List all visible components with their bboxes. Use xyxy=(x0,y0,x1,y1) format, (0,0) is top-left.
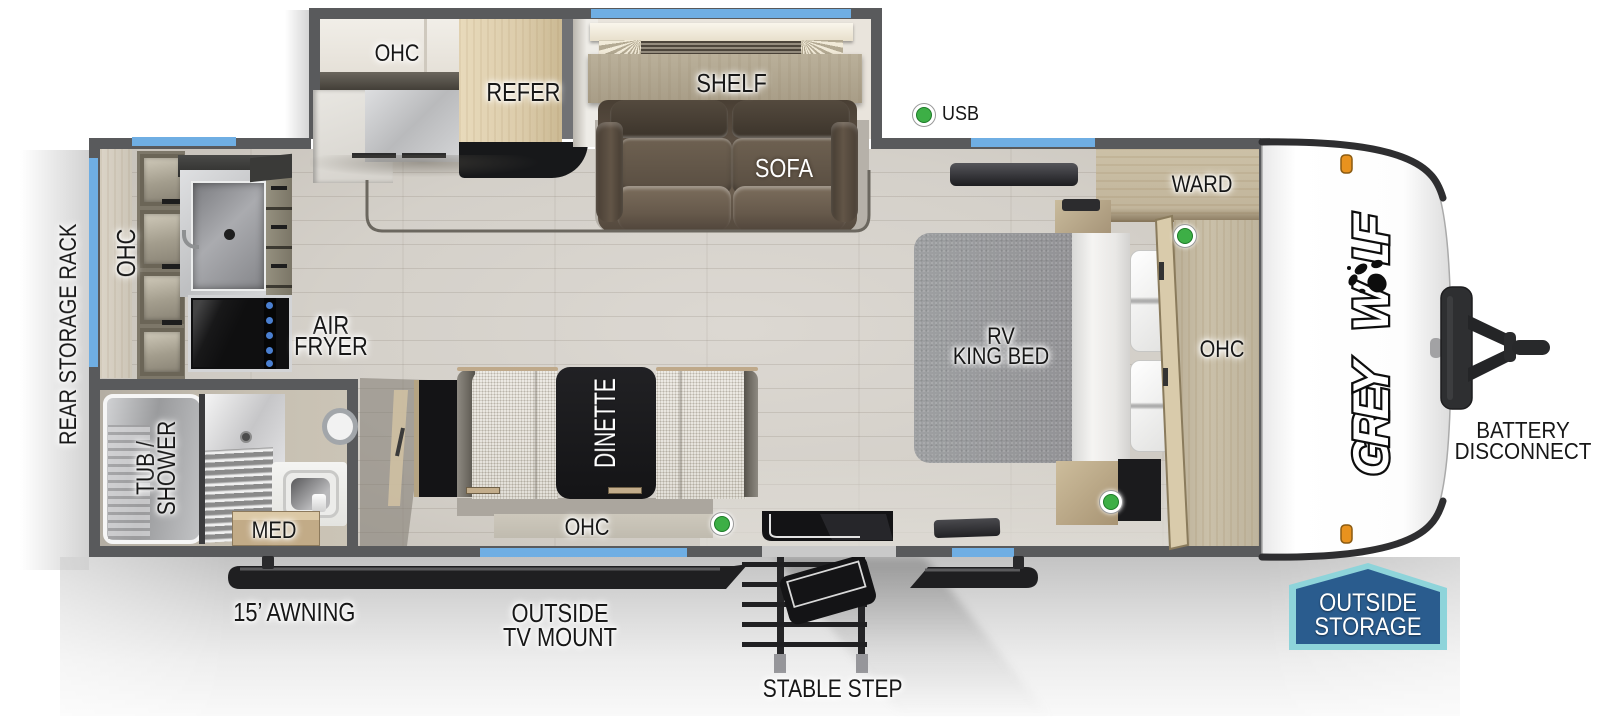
svg-text:GREY: GREY xyxy=(1343,357,1399,476)
svg-text:LF: LF xyxy=(1343,213,1399,264)
